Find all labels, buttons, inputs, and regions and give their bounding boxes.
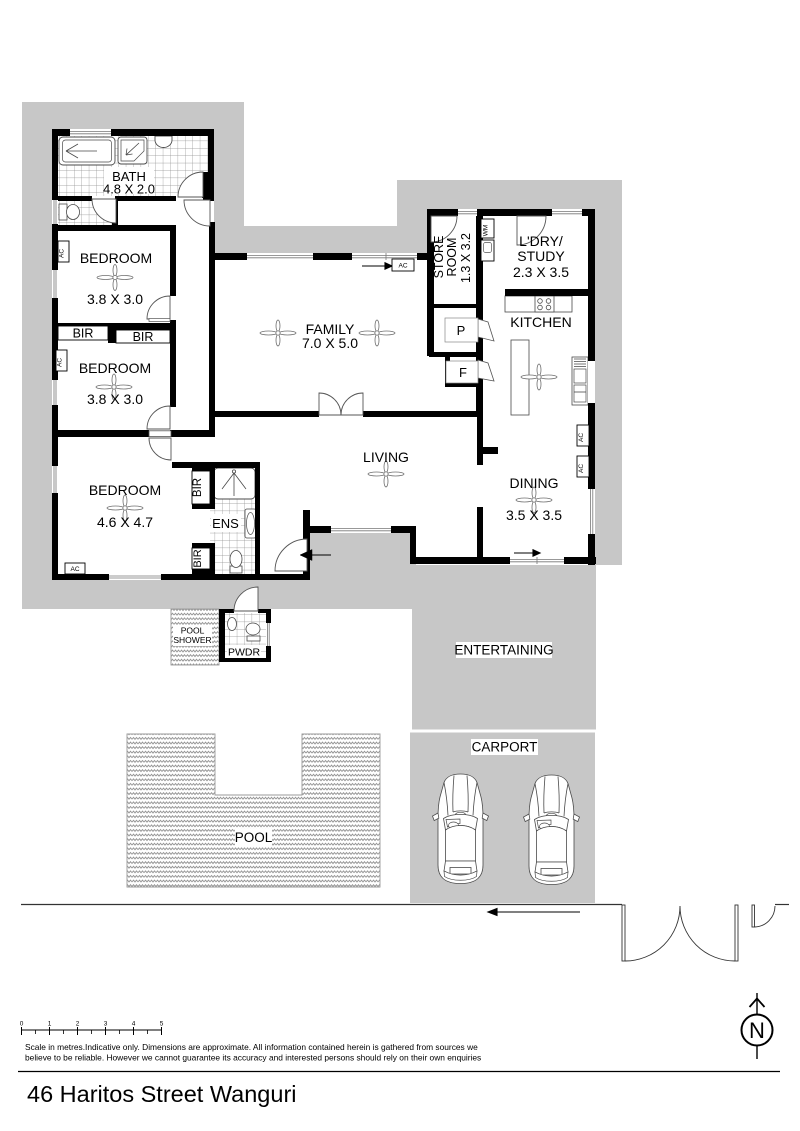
svg-text:AC: AC bbox=[59, 249, 66, 258]
svg-text:AC: AC bbox=[57, 358, 64, 367]
svg-text:AC: AC bbox=[578, 433, 585, 442]
svg-text:F: F bbox=[459, 365, 467, 380]
svg-text:Scale in metres.Indicative onl: Scale in metres.Indicative only. Dimensi… bbox=[25, 1042, 478, 1052]
svg-text:POOL: POOL bbox=[235, 830, 273, 845]
svg-text:1: 1 bbox=[48, 1021, 52, 1028]
svg-text:AC: AC bbox=[398, 263, 407, 270]
svg-text:CARPORT: CARPORT bbox=[472, 740, 538, 755]
svg-text:46 Haritos Street Wanguri: 46 Haritos Street Wanguri bbox=[27, 1081, 297, 1107]
svg-text:PWDR: PWDR bbox=[228, 647, 260, 659]
svg-text:3.8 X 3.0: 3.8 X 3.0 bbox=[87, 291, 143, 307]
svg-text:3.5 X 3.5: 3.5 X 3.5 bbox=[506, 507, 562, 523]
svg-text:0: 0 bbox=[20, 1021, 24, 1028]
svg-text:4: 4 bbox=[132, 1021, 136, 1028]
svg-text:DINING: DINING bbox=[510, 475, 559, 491]
svg-text:3: 3 bbox=[104, 1021, 108, 1028]
svg-text:5: 5 bbox=[160, 1021, 164, 1028]
svg-text:BIR: BIR bbox=[192, 478, 204, 497]
svg-text:BEDROOM: BEDROOM bbox=[89, 482, 161, 498]
svg-text:AC: AC bbox=[578, 464, 585, 473]
svg-text:POOL: POOL bbox=[181, 626, 205, 636]
svg-text:2.3 X 3.5: 2.3 X 3.5 bbox=[513, 264, 569, 280]
svg-text:STORE: STORE bbox=[432, 236, 446, 279]
svg-text:SHOWER: SHOWER bbox=[173, 635, 211, 645]
svg-text:STUDY: STUDY bbox=[517, 248, 565, 264]
svg-text:3.8 X 3.0: 3.8 X 3.0 bbox=[87, 391, 143, 407]
svg-text:WM: WM bbox=[483, 225, 490, 237]
svg-text:BEDROOM: BEDROOM bbox=[79, 360, 151, 376]
svg-text:4.8 X 2.0: 4.8 X 2.0 bbox=[103, 182, 155, 197]
svg-text:2: 2 bbox=[76, 1021, 80, 1028]
svg-text:BEDROOM: BEDROOM bbox=[80, 250, 152, 266]
svg-text:N: N bbox=[749, 1018, 765, 1043]
svg-text:ENS: ENS bbox=[212, 516, 239, 531]
svg-text:4.6 X 4.7: 4.6 X 4.7 bbox=[97, 514, 153, 530]
svg-text:ENTERTAINING: ENTERTAINING bbox=[454, 643, 553, 658]
svg-text:1.3 X 3.2: 1.3 X 3.2 bbox=[459, 233, 473, 283]
svg-text:AC: AC bbox=[70, 566, 79, 573]
svg-text:ROOM: ROOM bbox=[445, 238, 459, 277]
svg-text:L'DRY/: L'DRY/ bbox=[519, 233, 563, 249]
svg-text:7.0 X 5.0: 7.0 X 5.0 bbox=[302, 335, 358, 351]
svg-text:BIR: BIR bbox=[73, 327, 94, 341]
svg-text:believe to be reliable. Howeve: believe to be reliable. However we canno… bbox=[25, 1053, 481, 1063]
svg-text:P: P bbox=[457, 323, 466, 338]
svg-text:KITCHEN: KITCHEN bbox=[510, 314, 571, 330]
svg-text:LIVING: LIVING bbox=[363, 449, 409, 465]
svg-text:BIR: BIR bbox=[133, 330, 154, 344]
svg-text:BIR: BIR bbox=[192, 549, 204, 567]
